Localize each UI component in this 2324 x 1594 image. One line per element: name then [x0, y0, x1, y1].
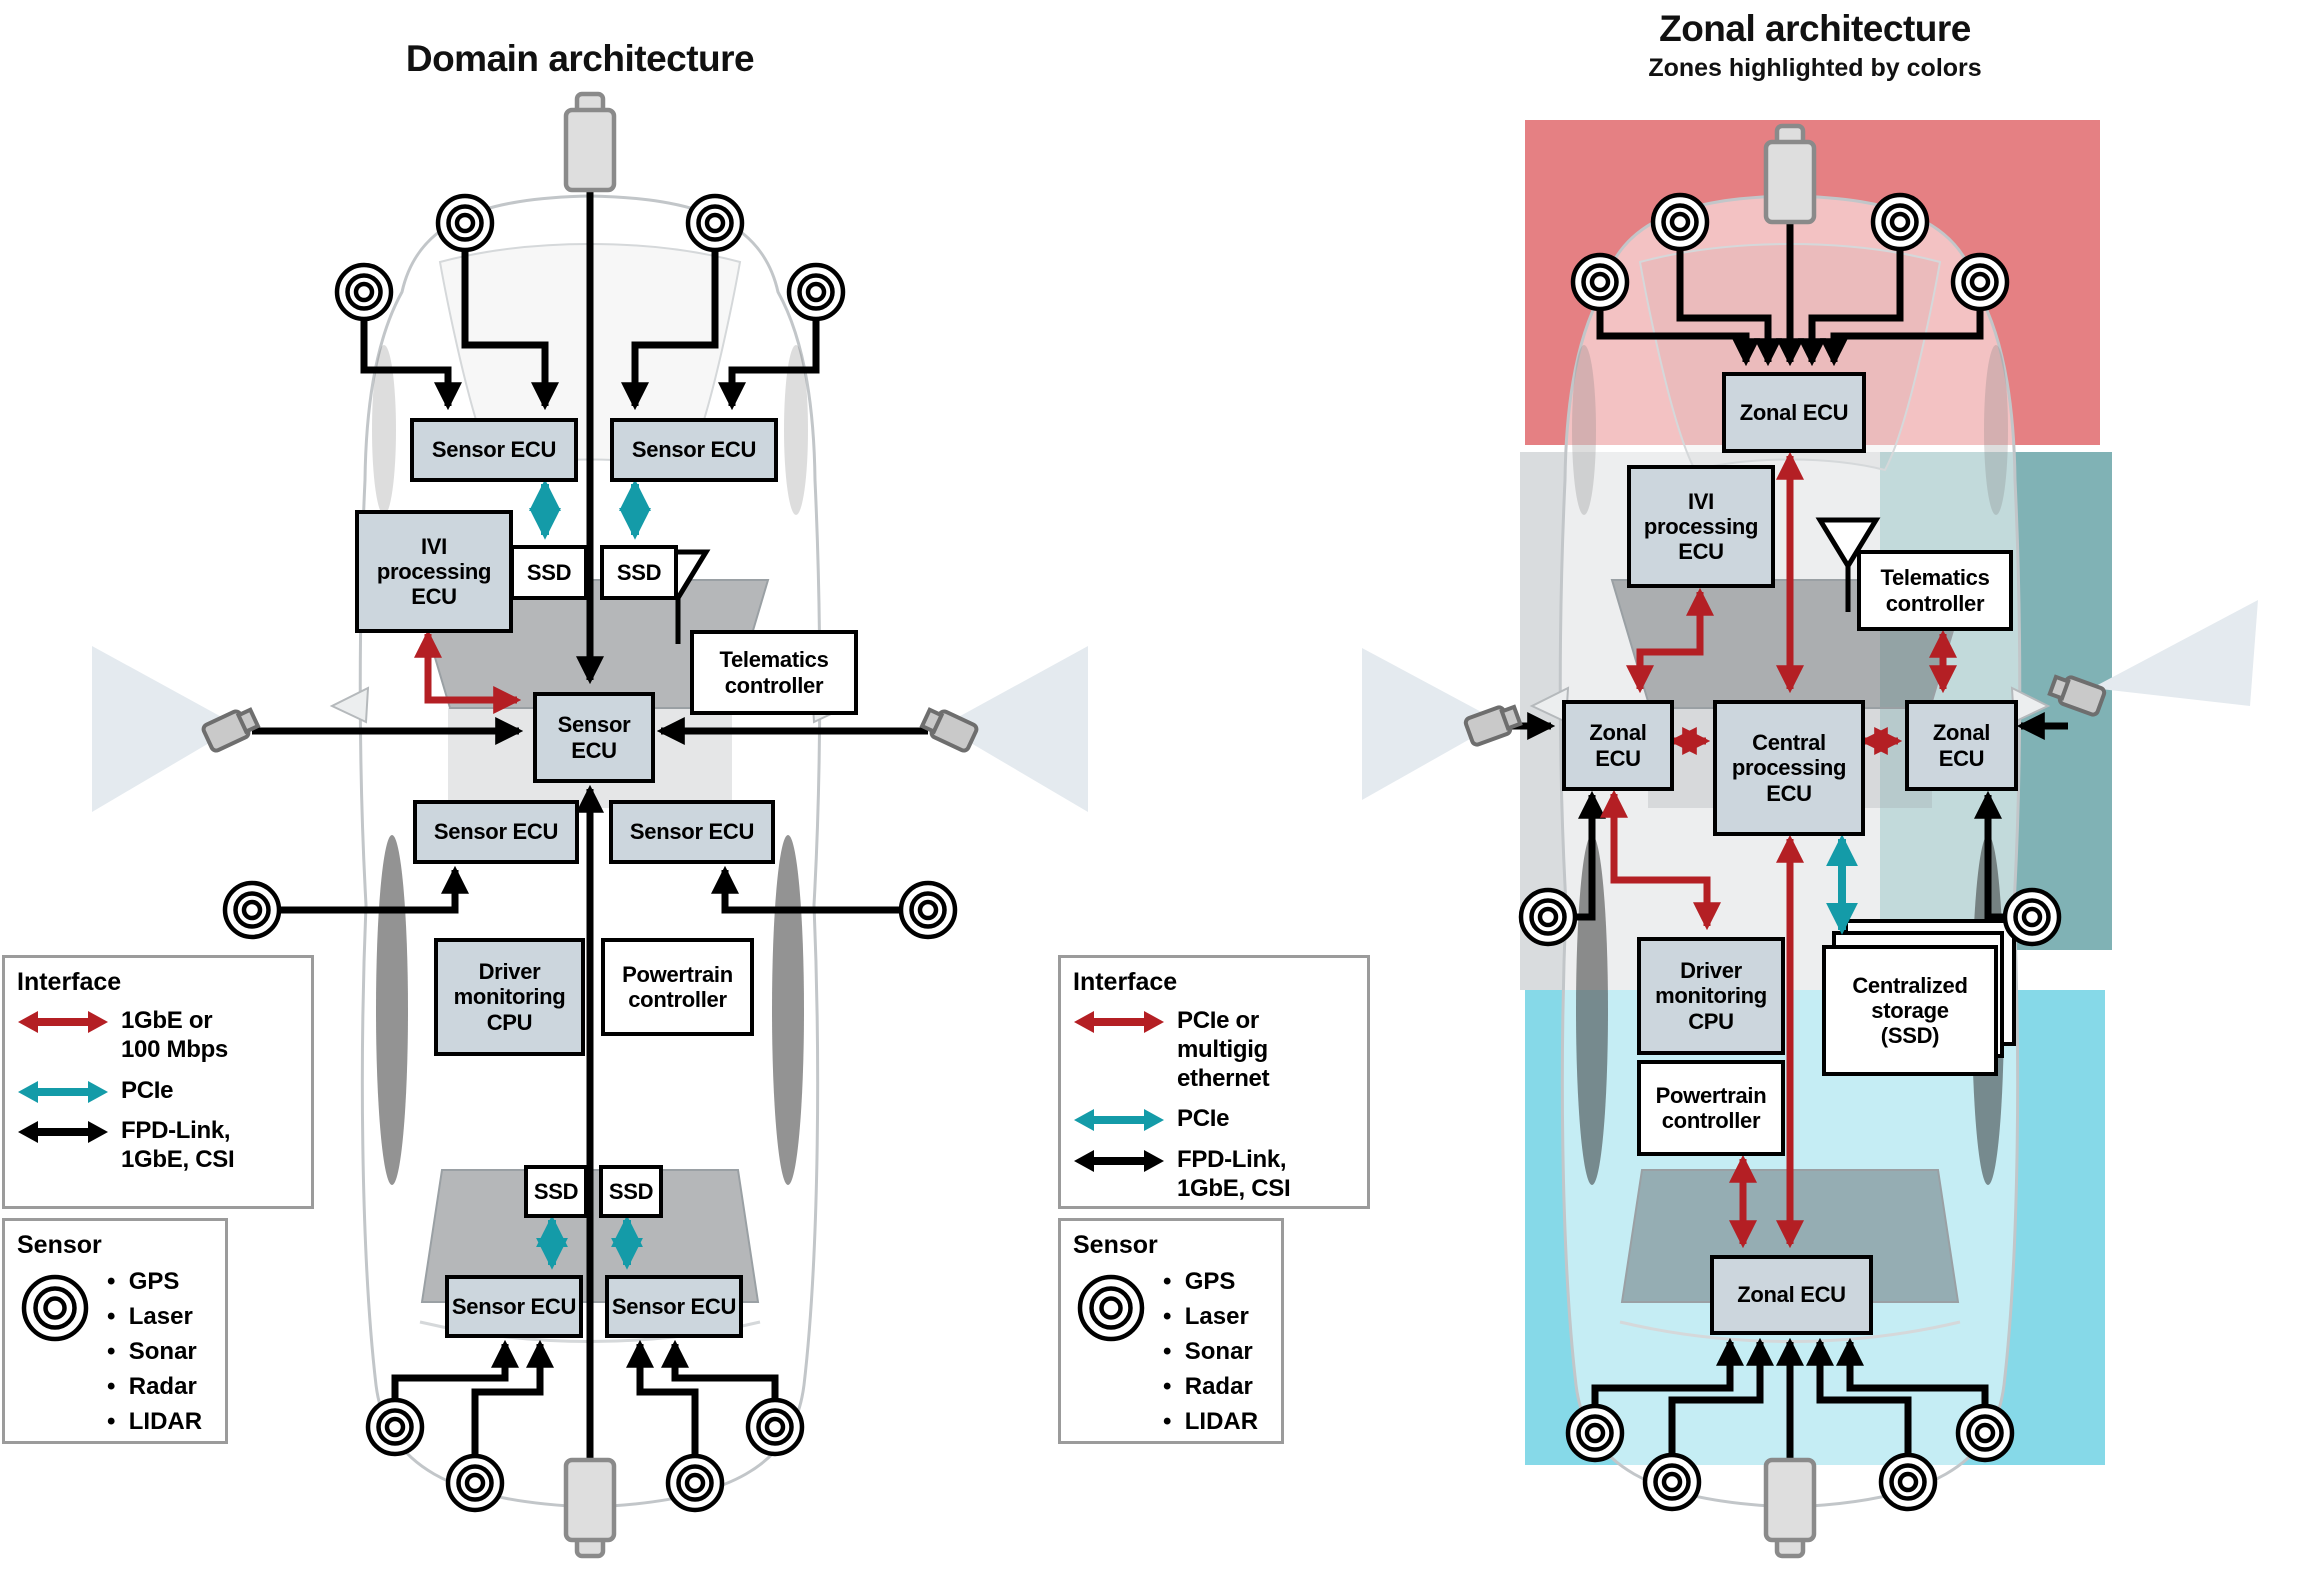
domain-ssd-front-left: SSD: [510, 545, 588, 600]
domain-black-links: [252, 180, 928, 1483]
legend-row: FPD-Link, 1GbE, CSI: [17, 1117, 299, 1175]
legend-row: PCIe or multigig ethernet: [1073, 1007, 1355, 1093]
sensor-type: Laser: [107, 1305, 202, 1329]
sensor-type: LIDAR: [1163, 1410, 1258, 1434]
legend-label: 1GbE or 100 Mbps: [121, 1007, 228, 1065]
sensor-icon: [1653, 195, 1707, 249]
domain-driver-monitoring-cpu: Driver monitoring CPU: [434, 938, 585, 1056]
sensor-type: LIDAR: [107, 1410, 202, 1434]
zonal-ivi-processing-ecu: IVI processing ECU: [1627, 465, 1775, 588]
legend-row: PCIe: [1073, 1105, 1355, 1134]
black-double-arrow-icon: [1073, 1148, 1165, 1174]
zonal-title: Zonal architecture: [1465, 8, 2165, 50]
camera-icon: [566, 94, 614, 190]
legend-row: GPS Laser Sonar Radar LIDAR: [17, 1270, 213, 1445]
zonal-telematics-controller: Telematics controller: [1857, 550, 2013, 631]
legend-row: 1GbE or 100 Mbps: [17, 1007, 299, 1065]
sensor-icon: [688, 196, 742, 250]
domain-sensor-ecu-mid-right: Sensor ECU: [609, 800, 775, 864]
sensor-icon: [368, 1400, 422, 1454]
architecture-comparison-diagram: Domain architecture Zonal architecture Z…: [0, 0, 2324, 1594]
zonal-subtitle: Zones highlighted by colors: [1465, 54, 2165, 83]
zonal-powertrain-controller: Powertrain controller: [1637, 1060, 1785, 1156]
domain-sensor-ecu-front-right: Sensor ECU: [610, 418, 778, 482]
domain-ssd-front-right: SSD: [600, 545, 678, 600]
zonal-ecu-front: Zonal ECU: [1722, 372, 1866, 453]
domain-telematics-controller: Telematics controller: [690, 630, 858, 715]
sensor-icon: [17, 1270, 93, 1346]
legend-row: PCIe: [17, 1077, 299, 1106]
sensor-type-list: GPS Laser Sonar Radar LIDAR: [1149, 1270, 1258, 1445]
domain-title: Domain architecture: [230, 38, 930, 80]
legend-row: FPD-Link, 1GbE, CSI: [1073, 1146, 1355, 1204]
sensor-type: Radar: [1163, 1375, 1258, 1399]
sensor-icon: [1645, 1455, 1699, 1509]
sensor-type: Radar: [107, 1375, 202, 1399]
sensor-icon: [1873, 195, 1927, 249]
domain-sensor-ecu-mid-left: Sensor ECU: [413, 800, 579, 864]
legend-row: GPS Laser Sonar Radar LIDAR: [1073, 1270, 1269, 1445]
sensor-icon: [901, 883, 955, 937]
sensor-icon: [789, 265, 843, 319]
domain-central-sensor-ecu: Sensor ECU: [533, 692, 655, 783]
domain-ssd-rear-right: SSD: [599, 1165, 663, 1218]
zonal-ecu-rear: Zonal ECU: [1710, 1255, 1873, 1335]
domain-ivi-processing-ecu: IVI processing ECU: [355, 510, 513, 633]
legend-title: Interface: [1073, 968, 1355, 997]
sensor-icon: [438, 196, 492, 250]
domain-ssd-rear-left: SSD: [524, 1165, 588, 1218]
legend-title: Sensor: [17, 1231, 213, 1260]
sensor-type-list: GPS Laser Sonar Radar LIDAR: [93, 1270, 202, 1445]
domain-sensor-ecu-front-left: Sensor ECU: [410, 418, 578, 482]
fov-cone: [2092, 600, 2258, 706]
domain-powertrain-controller: Powertrain controller: [601, 938, 754, 1036]
sensor-type: GPS: [107, 1270, 202, 1294]
sensor-icon: [337, 265, 391, 319]
sensor-icon: [1953, 255, 2007, 309]
sensor-icon: [1958, 1406, 2012, 1460]
sensor-icon: [748, 1400, 802, 1454]
domain-sensor-ecu-rear-right: Sensor ECU: [605, 1275, 743, 1338]
domain-interface-legend: Interface 1GbE or 100 Mbps PCIe FPD-Link…: [2, 955, 314, 1209]
sensor-type: Laser: [1163, 1305, 1258, 1329]
legend-label: PCIe or multigig ethernet: [1177, 1007, 1355, 1093]
sensor-icon: [1568, 1406, 1622, 1460]
zonal-ecu-right: Zonal ECU: [1905, 700, 2018, 791]
sensor-icon: [448, 1456, 502, 1510]
sensor-type: Sonar: [1163, 1340, 1258, 1364]
black-double-arrow-icon: [17, 1119, 109, 1145]
sensor-icon: [1881, 1455, 1935, 1509]
domain-sensor-ecu-rear-left: Sensor ECU: [445, 1275, 583, 1338]
zonal-interface-legend: Interface PCIe or multigig ethernet PCIe…: [1058, 955, 1370, 1209]
sensor-icon: [1073, 1270, 1149, 1346]
legend-label: FPD-Link, 1GbE, CSI: [121, 1117, 234, 1175]
sensor-icon: [225, 883, 279, 937]
zonal-ecu-left: Zonal ECU: [1562, 700, 1674, 791]
legend-title: Sensor: [1073, 1231, 1269, 1260]
sensor-icon: [1573, 255, 1627, 309]
sensor-type: GPS: [1163, 1270, 1258, 1294]
sensor-icon: [1521, 890, 1575, 944]
legend-title: Interface: [17, 968, 299, 997]
zonal-sensor-legend: Sensor GPS Laser Sonar Radar LIDAR: [1058, 1218, 1284, 1444]
zonal-centralized-storage: Centralized storage (SSD): [1822, 945, 1998, 1076]
zonal-central-processing-ecu: Central processing ECU: [1713, 700, 1865, 836]
red-double-arrow-icon: [1073, 1009, 1165, 1035]
camera-icon: [1766, 126, 1814, 222]
legend-label: FPD-Link, 1GbE, CSI: [1177, 1146, 1290, 1204]
teal-double-arrow-icon: [1073, 1107, 1165, 1133]
legend-label: PCIe: [121, 1077, 173, 1106]
legend-label: PCIe: [1177, 1105, 1229, 1134]
teal-double-arrow-icon: [17, 1079, 109, 1105]
sensor-icon: [2005, 890, 2059, 944]
sensor-type: Sonar: [107, 1340, 202, 1364]
camera-icon: [566, 1460, 614, 1556]
sensor-icon: [668, 1456, 722, 1510]
domain-sensor-legend: Sensor GPS Laser Sonar Radar LIDAR: [2, 1218, 228, 1444]
red-double-arrow-icon: [17, 1009, 109, 1035]
camera-icon: [1766, 1460, 1814, 1556]
zonal-driver-monitoring-cpu: Driver monitoring CPU: [1637, 937, 1785, 1055]
